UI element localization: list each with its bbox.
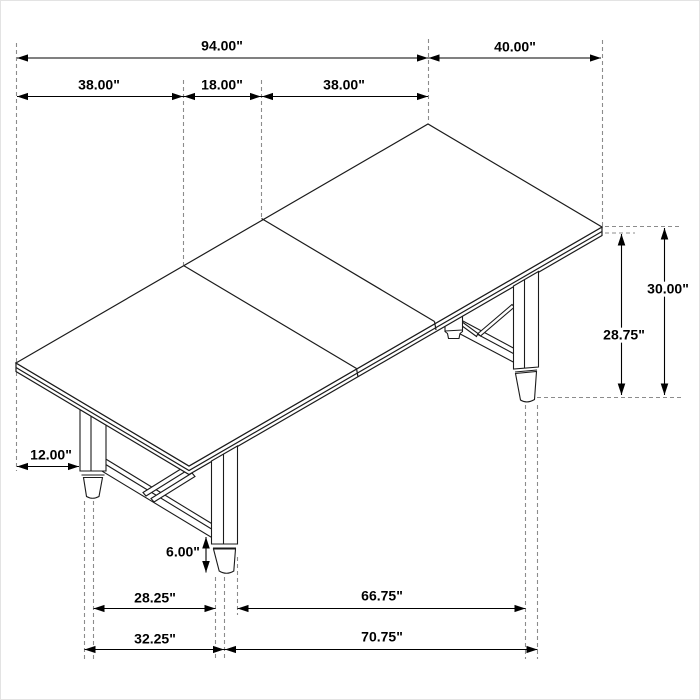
dim-label-section-left: 38.00" [76,78,122,93]
dim-label-leg-spacing-inner: 66.75" [359,589,405,604]
dim-label-section-right: 38.00" [321,78,367,93]
dim-label-feet-span-outer: 32.25" [132,632,178,647]
front-right-leg [514,272,539,402]
dim-label-height-total: 30.00" [645,282,691,297]
dim-label-feet-span-inner: 28.25" [132,591,178,606]
dim-label-width: 40.00" [492,40,538,55]
dim-label-leg-spacing-outer: 70.75" [359,630,405,645]
dimension-diagram: 94.00" 40.00" 38.00" 18.00" 38.00" 30.00… [0,0,700,700]
dim-label-foot-height: 6.00" [164,545,202,560]
dim-label-top-overhang: 12.00" [28,448,74,463]
dim-label-length-total: 94.00" [199,39,245,54]
dim-label-height-to-underside: 28.75" [601,328,647,343]
front-left-leg [212,446,238,573]
dim-label-section-middle: 18.00" [199,78,245,93]
table-line-drawing [1,1,700,700]
